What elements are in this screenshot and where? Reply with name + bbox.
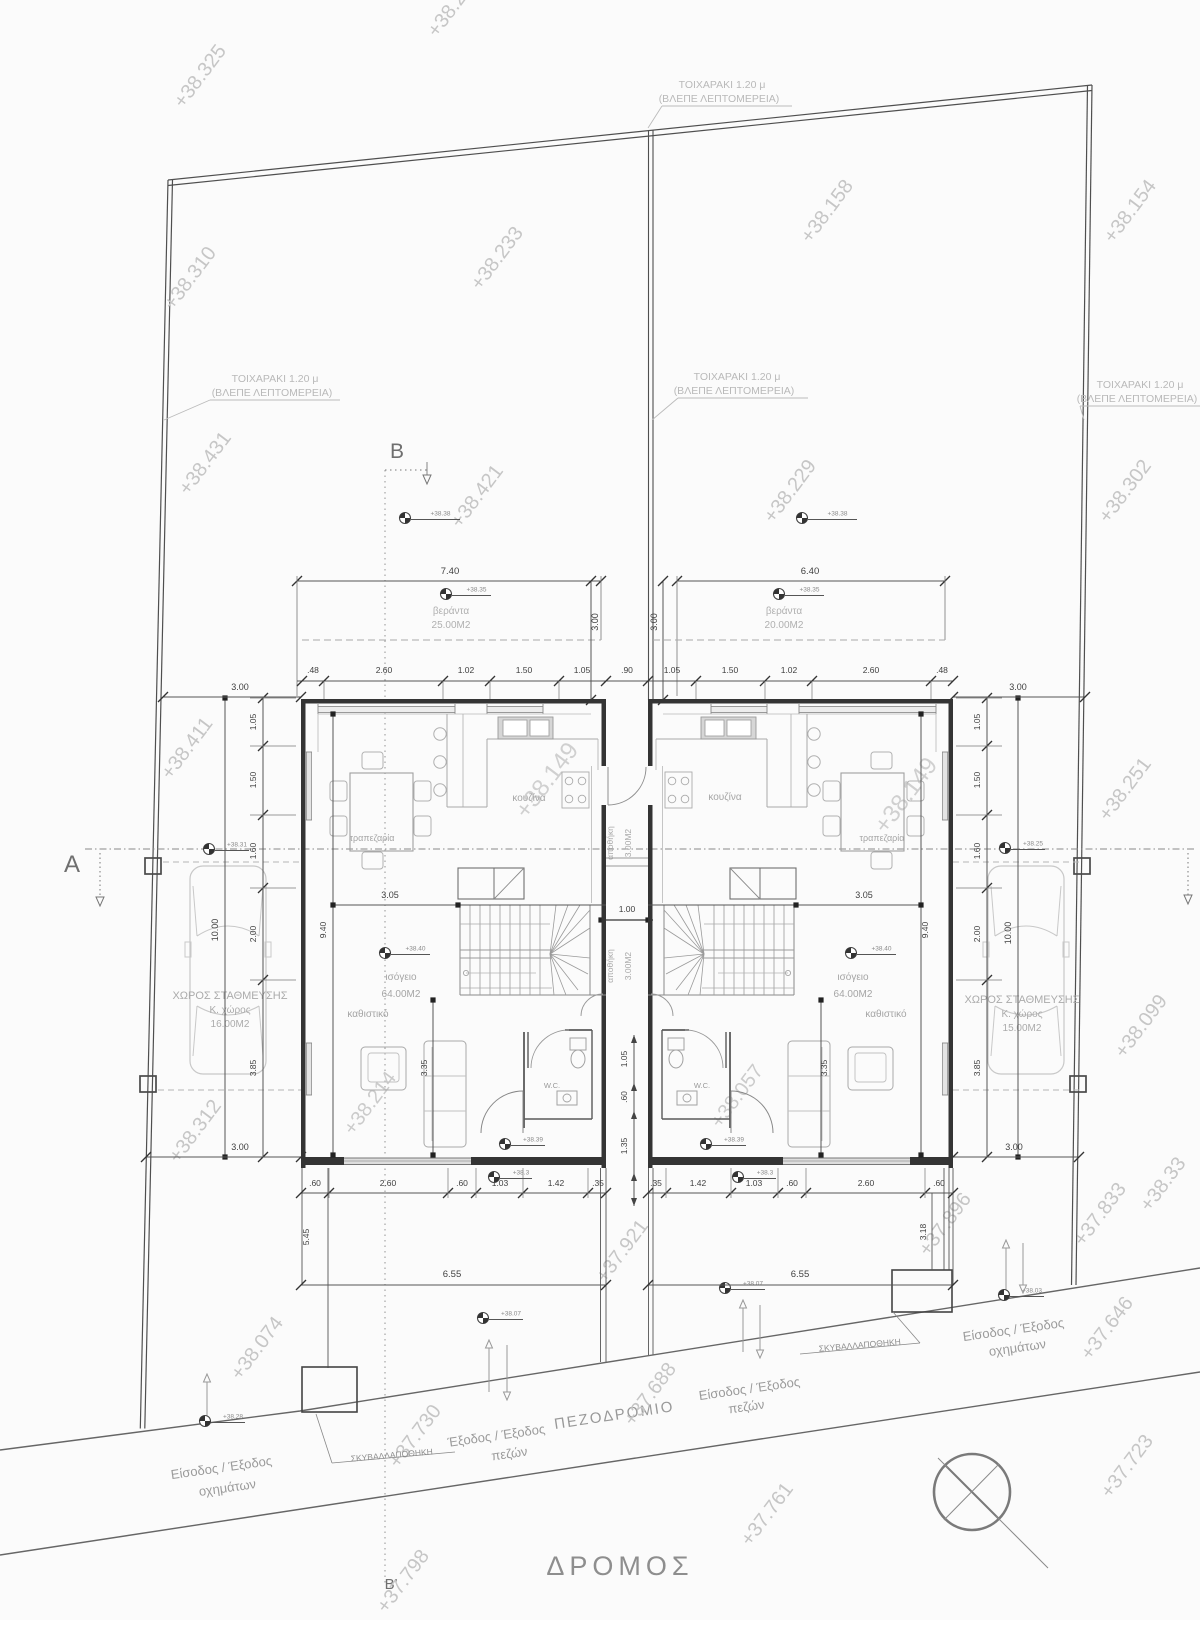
svg-text:3.00: 3.00 — [231, 1142, 249, 1152]
svg-text:+38.40: +38.40 — [871, 946, 891, 953]
svg-text:3.35: 3.35 — [819, 1059, 829, 1076]
svg-text:ΧΩΡΟΣ ΣΤΑΘΜΕΥΣΗΣ: ΧΩΡΟΣ ΣΤΑΘΜΕΥΣΗΣ — [964, 994, 1079, 1006]
svg-text:Κ. χώρος: Κ. χώρος — [209, 1004, 250, 1016]
svg-text:3.00: 3.00 — [590, 613, 600, 631]
svg-text:1.03: 1.03 — [746, 1178, 763, 1188]
svg-text:1.50: 1.50 — [972, 771, 982, 788]
svg-text:A: A — [64, 851, 80, 878]
svg-text:+38.07: +38.07 — [501, 1311, 521, 1318]
svg-text:καθιστικό: καθιστικό — [347, 1008, 389, 1020]
svg-text:1.05: 1.05 — [574, 665, 591, 675]
svg-text:+38.39: +38.39 — [724, 1137, 744, 1144]
svg-text:1.60: 1.60 — [248, 842, 258, 859]
svg-text:64.00Μ2: 64.00Μ2 — [382, 989, 421, 1000]
svg-text:6.40: 6.40 — [801, 566, 820, 577]
svg-text:1.02: 1.02 — [781, 665, 798, 675]
svg-text:+38.3: +38.3 — [513, 1170, 530, 1177]
svg-text:W.C.: W.C. — [694, 1081, 710, 1090]
svg-text:+38.03: +38.03 — [1022, 1288, 1042, 1295]
svg-text:.60: .60 — [933, 1178, 945, 1188]
svg-text:6.55: 6.55 — [791, 1269, 810, 1280]
svg-text:καθιστικό: καθιστικό — [865, 1008, 907, 1020]
svg-text:βεράντα: βεράντα — [433, 605, 469, 617]
svg-text:2.60: 2.60 — [858, 1178, 875, 1188]
svg-text:3.00: 3.00 — [231, 682, 249, 692]
svg-text:3.00Μ2: 3.00Μ2 — [623, 829, 633, 858]
svg-text:κουζίνα: κουζίνα — [708, 791, 742, 803]
svg-text:+38.3: +38.3 — [757, 1170, 774, 1177]
svg-text:αποθήκη: αποθήκη — [605, 949, 615, 983]
svg-text:1.00: 1.00 — [619, 904, 636, 914]
svg-text:(ΒΛΕΠΕ ΛΕΠΤΟΜΕΡΕΙΑ): (ΒΛΕΠΕ ΛΕΠΤΟΜΕΡΕΙΑ) — [674, 385, 795, 397]
svg-text:64.00Μ2: 64.00Μ2 — [834, 989, 873, 1000]
svg-text:3.35: 3.35 — [419, 1059, 429, 1076]
svg-text:.60: .60 — [619, 1091, 629, 1103]
svg-text:2.60: 2.60 — [863, 665, 880, 675]
svg-text:3.05: 3.05 — [855, 890, 873, 900]
svg-text:+38.39: +38.39 — [523, 1137, 543, 1144]
svg-text:τραπεζαρία: τραπεζαρία — [860, 833, 905, 843]
svg-text:1.05: 1.05 — [972, 713, 982, 730]
svg-text:1.35: 1.35 — [619, 1137, 629, 1154]
svg-text:3.05: 3.05 — [381, 890, 399, 900]
svg-text:.60: .60 — [456, 1178, 468, 1188]
svg-text:2.00: 2.00 — [248, 925, 258, 942]
svg-text:ΤΟΙΧΑΡΑΚΙ 1.20 μ: ΤΟΙΧΑΡΑΚΙ 1.20 μ — [679, 79, 766, 91]
svg-text:20.00Μ2: 20.00Μ2 — [765, 620, 804, 631]
svg-text:+38.28: +38.28 — [223, 1414, 243, 1421]
svg-text:25.00Μ2: 25.00Μ2 — [432, 620, 471, 631]
svg-text:15.00Μ2: 15.00Μ2 — [1003, 1023, 1042, 1034]
svg-text:+38.35: +38.35 — [799, 587, 819, 594]
svg-text:3.85: 3.85 — [248, 1059, 258, 1076]
svg-text:7.40: 7.40 — [441, 566, 460, 577]
svg-text:1.05: 1.05 — [664, 665, 681, 675]
svg-text:+38.38: +38.38 — [430, 511, 450, 518]
svg-text:βεράντα: βεράντα — [766, 605, 802, 617]
svg-text:+38.35: +38.35 — [466, 587, 486, 594]
svg-text:.35: .35 — [592, 1178, 604, 1188]
svg-text:1.42: 1.42 — [548, 1178, 565, 1188]
svg-text:+38.25: +38.25 — [1023, 841, 1043, 848]
svg-text:3.00: 3.00 — [1009, 682, 1027, 692]
svg-text:1.50: 1.50 — [248, 771, 258, 788]
svg-text:3.00: 3.00 — [649, 613, 659, 631]
svg-text:10.00: 10.00 — [210, 919, 220, 942]
svg-text:1.60: 1.60 — [972, 842, 982, 859]
svg-text:3.00: 3.00 — [1005, 1142, 1023, 1152]
svg-text:16.00Μ2: 16.00Μ2 — [211, 1019, 250, 1030]
svg-text:1.42: 1.42 — [690, 1178, 707, 1188]
svg-text:9.40: 9.40 — [318, 921, 328, 938]
svg-text:10.00: 10.00 — [1003, 922, 1013, 945]
svg-text:(ΒΛΕΠΕ ΛΕΠΤΟΜΕΡΕΙΑ): (ΒΛΕΠΕ ΛΕΠΤΟΜΕΡΕΙΑ) — [659, 93, 780, 105]
svg-text:1.02: 1.02 — [458, 665, 475, 675]
svg-text:3.00Μ2: 3.00Μ2 — [623, 952, 633, 981]
svg-text:.90: .90 — [621, 665, 633, 675]
svg-text:9.40: 9.40 — [920, 921, 930, 938]
svg-text:5.45: 5.45 — [301, 1228, 311, 1245]
svg-text:+38.07: +38.07 — [743, 1281, 763, 1288]
svg-text:.48: .48 — [307, 665, 319, 675]
svg-text:ισόγειο: ισόγειο — [385, 971, 417, 983]
svg-text:ΤΟΙΧΑΡΑΚΙ 1.20 μ: ΤΟΙΧΑΡΑΚΙ 1.20 μ — [694, 371, 781, 383]
svg-text:ΧΩΡΟΣ ΣΤΑΘΜΕΥΣΗΣ: ΧΩΡΟΣ ΣΤΑΘΜΕΥΣΗΣ — [172, 990, 287, 1002]
svg-text:ισόγειο: ισόγειο — [837, 971, 869, 983]
svg-text:αποθήκη: αποθήκη — [605, 826, 615, 860]
svg-text:6.55: 6.55 — [443, 1269, 462, 1280]
svg-text:ΤΟΙΧΑΡΑΚΙ 1.20 μ: ΤΟΙΧΑΡΑΚΙ 1.20 μ — [232, 373, 319, 385]
svg-text:B: B — [390, 440, 404, 463]
svg-text:1.50: 1.50 — [722, 665, 739, 675]
svg-text:.60: .60 — [309, 1178, 321, 1188]
svg-text:.35: .35 — [650, 1178, 662, 1188]
svg-text:.60: .60 — [786, 1178, 798, 1188]
svg-text:ΤΟΙΧΑΡΑΚΙ 1.20 μ: ΤΟΙΧΑΡΑΚΙ 1.20 μ — [1097, 379, 1184, 391]
svg-text:(ΒΛΕΠΕ ΛΕΠΤΟΜΕΡΕΙΑ): (ΒΛΕΠΕ ΛΕΠΤΟΜΕΡΕΙΑ) — [212, 387, 333, 399]
svg-text:+38.31: +38.31 — [227, 842, 247, 849]
svg-text:3.18: 3.18 — [918, 1223, 928, 1240]
svg-text:1.05: 1.05 — [248, 713, 258, 730]
svg-text:1.05: 1.05 — [619, 1050, 629, 1067]
svg-text:3.85: 3.85 — [972, 1059, 982, 1076]
svg-text:2.00: 2.00 — [972, 925, 982, 942]
svg-text:Κ. χώρος: Κ. χώρος — [1001, 1008, 1042, 1020]
svg-text:(ΒΛΕΠΕ ΛΕΠΤΟΜΕΡΕΙΑ): (ΒΛΕΠΕ ΛΕΠΤΟΜΕΡΕΙΑ) — [1077, 393, 1198, 405]
svg-text:κουζίνα: κουζίνα — [512, 792, 546, 804]
svg-text:+38.38: +38.38 — [827, 511, 847, 518]
svg-text:W.C.: W.C. — [544, 1081, 560, 1090]
svg-text:.48: .48 — [936, 665, 948, 675]
svg-text:2.60: 2.60 — [380, 1178, 397, 1188]
svg-text:ΔΡΟΜΟΣ: ΔΡΟΜΟΣ — [546, 1551, 693, 1581]
svg-text:2.60: 2.60 — [376, 665, 393, 675]
svg-text:+38.40: +38.40 — [405, 946, 425, 953]
svg-text:1.50: 1.50 — [516, 665, 533, 675]
svg-text:τραπεζαρία: τραπεζαρία — [350, 833, 395, 843]
